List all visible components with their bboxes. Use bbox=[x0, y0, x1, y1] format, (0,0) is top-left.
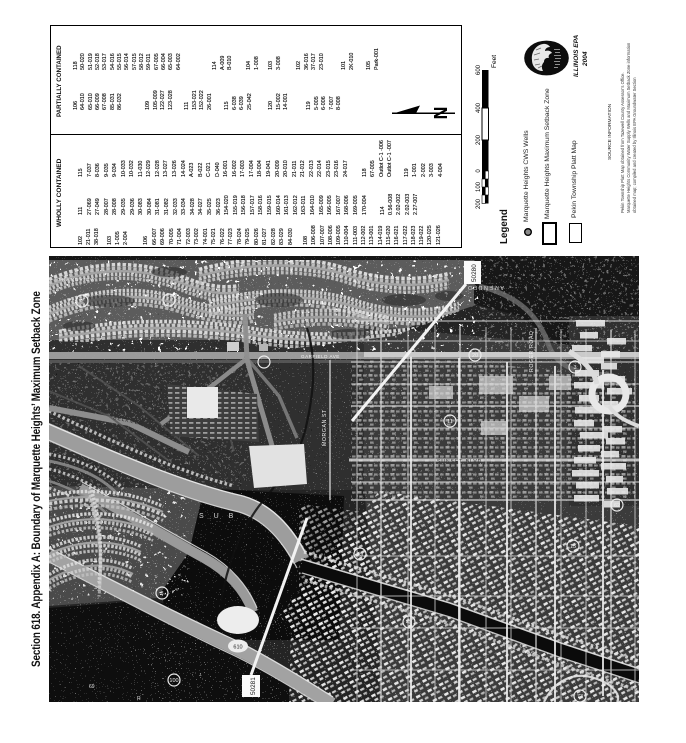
svg-text:200: 200 bbox=[476, 134, 482, 145]
svg-text:0: 0 bbox=[476, 169, 482, 173]
svg-text:73: 73 bbox=[577, 694, 583, 700]
svg-text:400: 400 bbox=[476, 102, 482, 113]
svg-text:100: 100 bbox=[169, 678, 178, 684]
svg-text:62: 62 bbox=[614, 503, 620, 509]
svg-text:200: 200 bbox=[476, 198, 482, 209]
svg-text:3: 3 bbox=[573, 365, 576, 371]
svg-text:50281: 50281 bbox=[250, 677, 257, 695]
svg-text:S U B: S U B bbox=[199, 513, 237, 520]
svg-text:GRANDVIEW: GRANDVIEW bbox=[57, 277, 96, 283]
svg-text:600: 600 bbox=[476, 64, 482, 75]
svg-text:48: 48 bbox=[406, 620, 412, 626]
svg-text:GARFIELD AVE: GARFIELD AVE bbox=[301, 354, 340, 359]
svg-text:Feet: Feet bbox=[491, 55, 498, 68]
svg-text:610: 610 bbox=[233, 645, 242, 651]
svg-text:50280: 50280 bbox=[471, 264, 478, 282]
svg-text:15: 15 bbox=[570, 544, 576, 550]
svg-text:11: 11 bbox=[447, 419, 453, 425]
svg-text:29: 29 bbox=[357, 552, 363, 558]
svg-text:20: 20 bbox=[472, 353, 478, 359]
svg-text:SUNSET BLVD: SUNSET BLVD bbox=[437, 459, 482, 465]
svg-text:J: J bbox=[199, 672, 201, 677]
svg-text:69: 69 bbox=[89, 684, 95, 690]
svg-text:R: R bbox=[137, 696, 141, 702]
svg-text:MORGAN ST: MORGAN ST bbox=[322, 409, 328, 446]
svg-text:100: 100 bbox=[476, 181, 482, 192]
svg-text:N: N bbox=[431, 107, 451, 120]
svg-text:AMENDED: AMENDED bbox=[467, 284, 504, 290]
svg-text:ROGER ROAD: ROGER ROAD bbox=[529, 331, 535, 372]
svg-text:8: 8 bbox=[160, 591, 163, 597]
